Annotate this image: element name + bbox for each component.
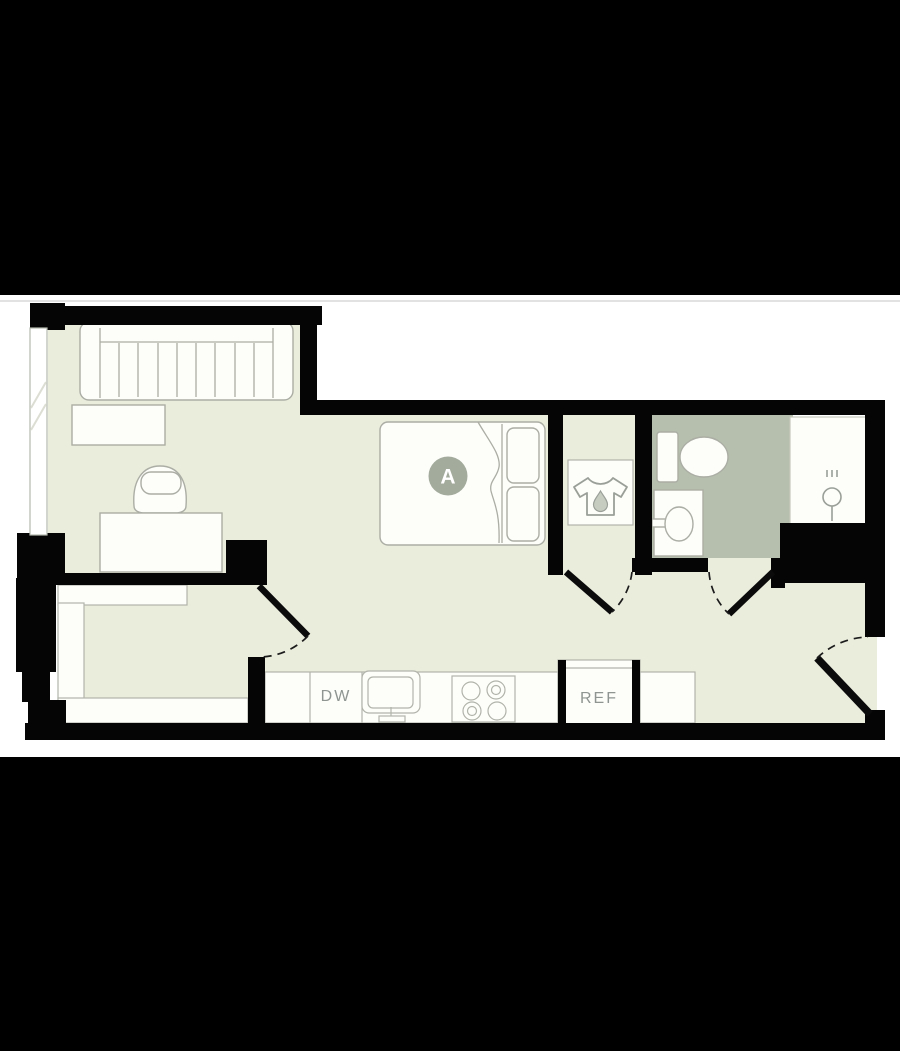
wall-top-left xyxy=(30,306,322,325)
shower xyxy=(790,417,867,524)
bottom-letterbox-bar xyxy=(0,757,900,1051)
coffee-table xyxy=(72,405,165,445)
wall-top-main xyxy=(300,400,880,415)
unit-badge-label: A xyxy=(440,466,455,489)
sofa xyxy=(80,322,293,400)
wall-walkin-top xyxy=(55,573,230,585)
window xyxy=(30,328,47,535)
cooktop xyxy=(452,676,515,722)
wall-closet-bath-divider xyxy=(635,415,652,575)
armchair xyxy=(134,466,186,513)
burner xyxy=(462,682,480,700)
wall-window-top xyxy=(30,303,65,330)
unit-badge: A xyxy=(429,457,468,496)
dresser xyxy=(58,698,248,723)
entry-threshold-floor xyxy=(865,637,877,715)
wall-right xyxy=(865,400,885,637)
wall-left-c xyxy=(28,700,66,740)
top-letterbox-bar xyxy=(0,0,900,295)
wall-bottom xyxy=(25,723,883,740)
wall-corner-block xyxy=(226,540,267,585)
laundry-unit xyxy=(568,460,633,525)
floor-plan-screenshot: A DW xyxy=(0,0,900,1051)
vanity-sink xyxy=(652,490,703,556)
wall-step xyxy=(300,306,317,415)
wall-window-bottom xyxy=(17,533,65,580)
pillow xyxy=(507,428,539,483)
wall-under-shower xyxy=(780,523,880,583)
pillow xyxy=(507,487,539,541)
burner xyxy=(488,702,506,720)
wall-bedroom-right xyxy=(548,415,563,575)
wall-left-b xyxy=(22,672,50,702)
wall-hall-middle xyxy=(632,558,708,572)
floor-plan-canvas: A DW xyxy=(0,0,900,1051)
refrigerator: REF xyxy=(558,660,640,727)
refrigerator-label: REF xyxy=(580,690,618,707)
wall-left-a xyxy=(16,578,56,672)
dishwasher-label: DW xyxy=(321,688,352,705)
faucet xyxy=(379,716,405,722)
wall-walkin-right xyxy=(248,657,265,727)
desk xyxy=(100,513,222,572)
